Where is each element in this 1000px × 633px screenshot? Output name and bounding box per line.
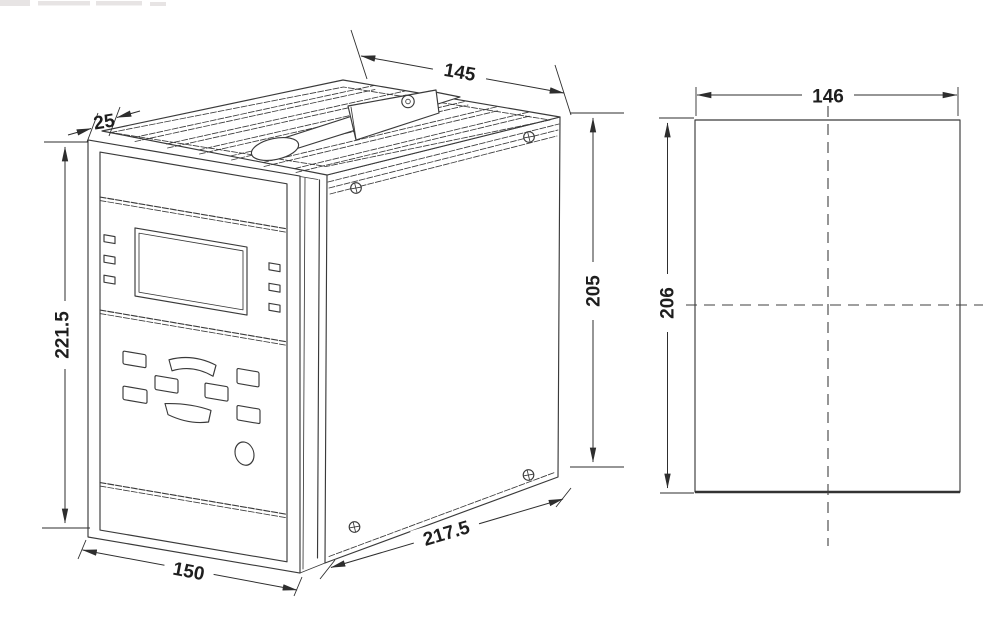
dim-label-case-height: 205 <box>584 275 605 307</box>
dim-label-panel-width: 150 <box>171 559 206 586</box>
technical-drawing-canvas: 221.5 25 145 <box>0 0 1000 633</box>
dim-panel-height: 221.5 <box>42 142 90 528</box>
dim-label-bezel-depth: 25 <box>92 110 117 134</box>
isometric-view: 221.5 25 145 <box>42 30 624 596</box>
front-panel <box>88 140 300 573</box>
dim-label-cutout-width: 146 <box>812 87 844 108</box>
dim-label-top-width: 145 <box>442 60 477 86</box>
dim-case-height: 205 <box>570 113 624 467</box>
dim-cutout-width: 146 <box>696 84 958 116</box>
panel-cutout-view: 146 206 <box>655 84 983 546</box>
dimension-drawing: 221.5 25 145 <box>0 0 1000 633</box>
dim-label-panel-height: 221.5 <box>53 311 74 359</box>
dim-label-cutout-height: 206 <box>658 287 679 319</box>
scan-artifact <box>0 0 166 6</box>
front-bezel-outline <box>88 140 300 573</box>
